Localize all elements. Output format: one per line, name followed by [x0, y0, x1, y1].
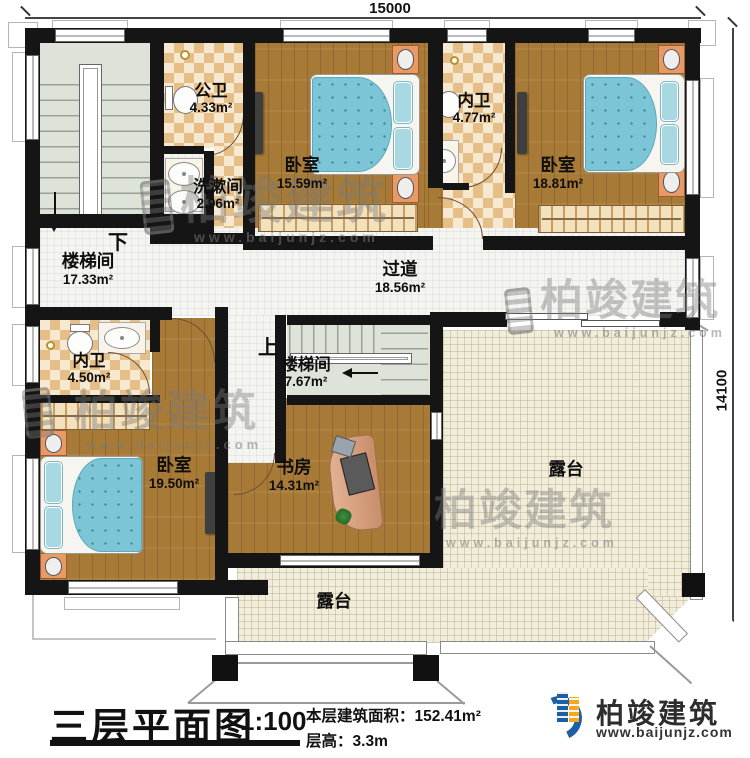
wall [150, 320, 160, 352]
window [447, 29, 487, 42]
tv-console [517, 92, 527, 154]
stair-railing [79, 64, 102, 220]
window [26, 458, 39, 550]
eave-line [32, 595, 34, 640]
watermark-url: www.baijunjz.com [434, 537, 618, 550]
room-label-public-bath: 公卫 4.33m² [176, 82, 246, 116]
column [682, 573, 705, 597]
dimension-tick [727, 17, 738, 28]
stair-down-label: 下 [108, 226, 128, 255]
floor-plan-canvas: 15000 14100 [0, 0, 750, 758]
title-underline [50, 740, 300, 746]
terrace-railing [690, 330, 703, 600]
terrace-railing [225, 641, 427, 655]
wall [483, 236, 685, 250]
room-label-stairhall-left: 楼梯间 17.33m² [36, 252, 140, 287]
dimension-top-value: 15000 [354, 0, 426, 17]
wall [230, 580, 268, 595]
window [588, 29, 635, 42]
stair-direction-arrow [352, 372, 378, 374]
pillow [45, 507, 62, 548]
room-label-hallway: 过道 18.56m² [362, 260, 438, 295]
room-label-ensuite-top: 内卫 4.77m² [438, 92, 510, 126]
window [68, 581, 178, 594]
room-label-bedroom-top: 卧室 15.59m² [260, 156, 344, 191]
window [283, 29, 390, 42]
wall [443, 183, 469, 190]
ceiling-lamp-icon [180, 50, 190, 60]
window-sill [12, 455, 26, 553]
window [26, 55, 39, 140]
dimension-tick [20, 6, 31, 17]
floor-area-label: 本层建筑面积： [306, 708, 415, 725]
nightstand [392, 173, 419, 203]
dimension-line-right [732, 28, 734, 660]
floor-height-info: 层高：3.3m [306, 729, 388, 751]
room-label-stairhall-mid: 楼梯间 7.67m² [266, 356, 346, 390]
floor-area-value: 152.41m² [415, 708, 481, 725]
room-label-washroom: 洗漱间 2.96m² [178, 178, 258, 212]
pillow [45, 462, 62, 503]
brand-logo-building-icon [557, 692, 568, 722]
window [26, 326, 39, 383]
floor-area-info: 本层建筑面积：152.41m² [306, 704, 481, 726]
window [431, 412, 442, 440]
wall [430, 312, 507, 327]
wall [164, 146, 204, 154]
pillow [394, 128, 412, 169]
toilet-tank [165, 86, 173, 110]
column [413, 655, 439, 681]
window-sill [12, 246, 26, 308]
nightstand [658, 45, 685, 74]
window [55, 29, 125, 42]
watermark-text: 柏竣建筑 [434, 487, 614, 535]
brand-logo-building-icon [569, 697, 579, 722]
window [280, 555, 420, 566]
eave-line [32, 638, 216, 640]
watermark-url: www.baijunjz.com [540, 327, 726, 340]
pillow [661, 125, 678, 164]
window-sill [700, 78, 714, 198]
watermark-url: www.baijunjz.com [180, 230, 388, 244]
watermark-url: www.baijunjz.com [74, 438, 262, 451]
ceiling-lamp-icon [46, 341, 55, 350]
watermark-logo-icon [139, 179, 174, 236]
porch-outline [238, 662, 415, 664]
room-label-terrace-bottom: 露台 [296, 592, 372, 612]
dimension-right-value: 14100 [714, 363, 731, 419]
room-label-bedroom-bottom: 卧室 19.50m² [132, 456, 216, 491]
dimension-tick [695, 6, 706, 17]
room-label-study: 书房 14.31m² [252, 458, 336, 493]
ceiling-lamp-icon [450, 56, 459, 65]
column [212, 655, 238, 681]
watermark: 柏竣建筑 www.baijunjz.com [434, 490, 618, 550]
room-label-terrace-right: 露台 [526, 460, 606, 480]
watermark-text: 柏竣建筑 [74, 387, 258, 436]
terrace-railing [440, 641, 655, 654]
window-sill [12, 52, 26, 142]
watermark-logo-icon [21, 387, 54, 440]
window-sill [12, 324, 26, 386]
watermark: 柏竣建筑 www.baijunjz.com [74, 390, 262, 451]
watermark: 柏竣建筑 www.baijunjz.com [540, 280, 726, 340]
window [686, 80, 699, 195]
nightstand [40, 553, 67, 579]
pillow [661, 82, 678, 121]
brand-website: www.baijunjz.com [596, 724, 733, 740]
nightstand [392, 45, 419, 74]
terrace-railing [225, 597, 239, 643]
sink [104, 327, 140, 349]
pillow [394, 82, 412, 123]
watermark-logo-icon [504, 287, 535, 335]
wardrobe [538, 205, 685, 233]
dimension-line-top [25, 17, 701, 19]
floor-height-value: 3.3m [353, 733, 388, 750]
room-label-bedroom-right: 卧室 18.81m² [514, 156, 602, 191]
wall [287, 395, 430, 405]
wall [25, 307, 172, 320]
room-label-ensuite-left: 内卫 4.50m² [50, 352, 128, 386]
wall [287, 315, 430, 325]
floor-height-label: 层高： [306, 733, 353, 750]
drawing-scale: 1:100 [240, 706, 307, 737]
watermark-text: 柏竣建筑 [540, 277, 720, 325]
window-sill [64, 597, 180, 610]
